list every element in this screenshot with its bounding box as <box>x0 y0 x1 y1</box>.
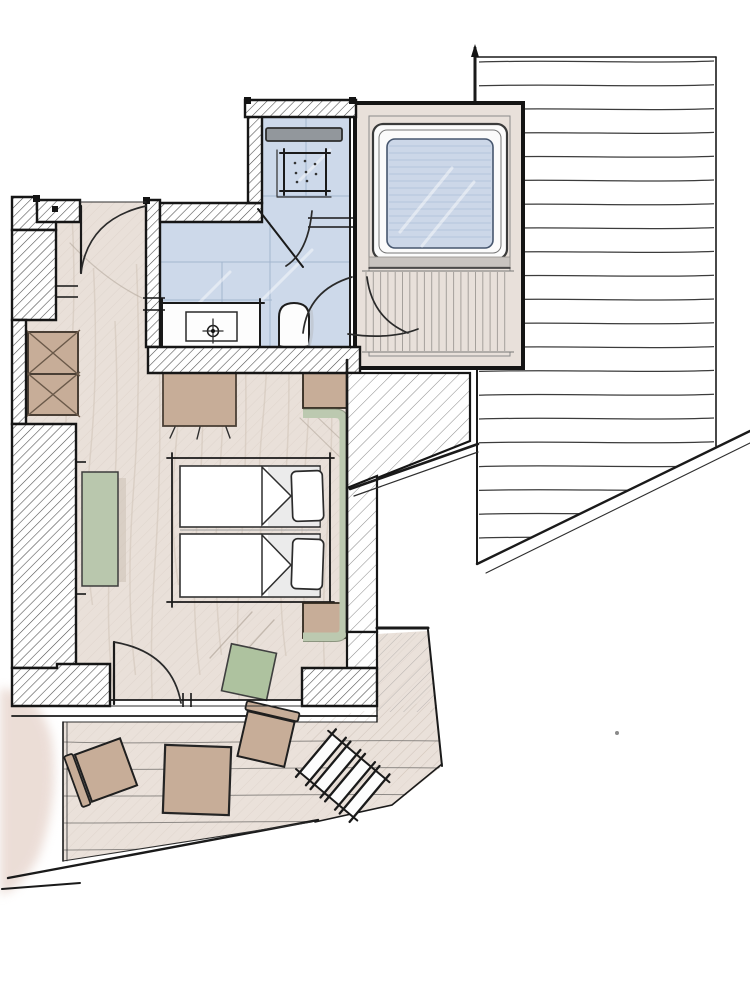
cushion-chair <box>222 644 277 701</box>
table-top <box>163 745 231 815</box>
wall-bottom-right <box>302 668 377 706</box>
wall-mass-east <box>347 373 470 488</box>
wall-shower-north <box>245 100 356 117</box>
skylight-window <box>387 139 493 248</box>
washbasin-counter <box>157 299 264 352</box>
wall-bottom-left <box>12 664 110 706</box>
roof-corner-flag <box>471 44 479 57</box>
eave-edge <box>477 431 750 573</box>
wall-left-lower <box>12 424 76 668</box>
wall-bathroom-step <box>160 203 262 222</box>
bench-shadow <box>118 478 126 582</box>
wall-entry-left <box>37 200 80 222</box>
wall-bedroom-east-low <box>347 632 377 668</box>
window-sill <box>369 257 510 267</box>
double-bed <box>167 453 334 607</box>
terrace-table <box>163 745 231 815</box>
nightstand-top <box>303 370 348 408</box>
dormer-bay <box>355 103 523 368</box>
ground-wash <box>0 688 54 895</box>
stray-pencil-dot <box>615 731 619 735</box>
chair-seat <box>237 711 294 767</box>
wall-bathroom-west <box>146 200 160 347</box>
wall-bedroom-east <box>347 476 377 632</box>
bay-plank-floor <box>362 271 514 352</box>
wardrobe <box>26 330 80 417</box>
wall-bathroom-south <box>148 347 360 373</box>
wall-bench-green <box>82 472 118 586</box>
toilet <box>279 303 312 348</box>
floor-plan-sketch <box>0 0 750 1000</box>
wall-left-upper <box>12 230 56 320</box>
pillow-top <box>291 470 324 521</box>
mirror-strip <box>266 128 342 141</box>
wall-niche-back <box>12 320 26 424</box>
wall-shower-west <box>248 110 262 203</box>
floor-plan-canvas <box>0 0 750 1000</box>
pillow-bottom <box>291 538 324 589</box>
